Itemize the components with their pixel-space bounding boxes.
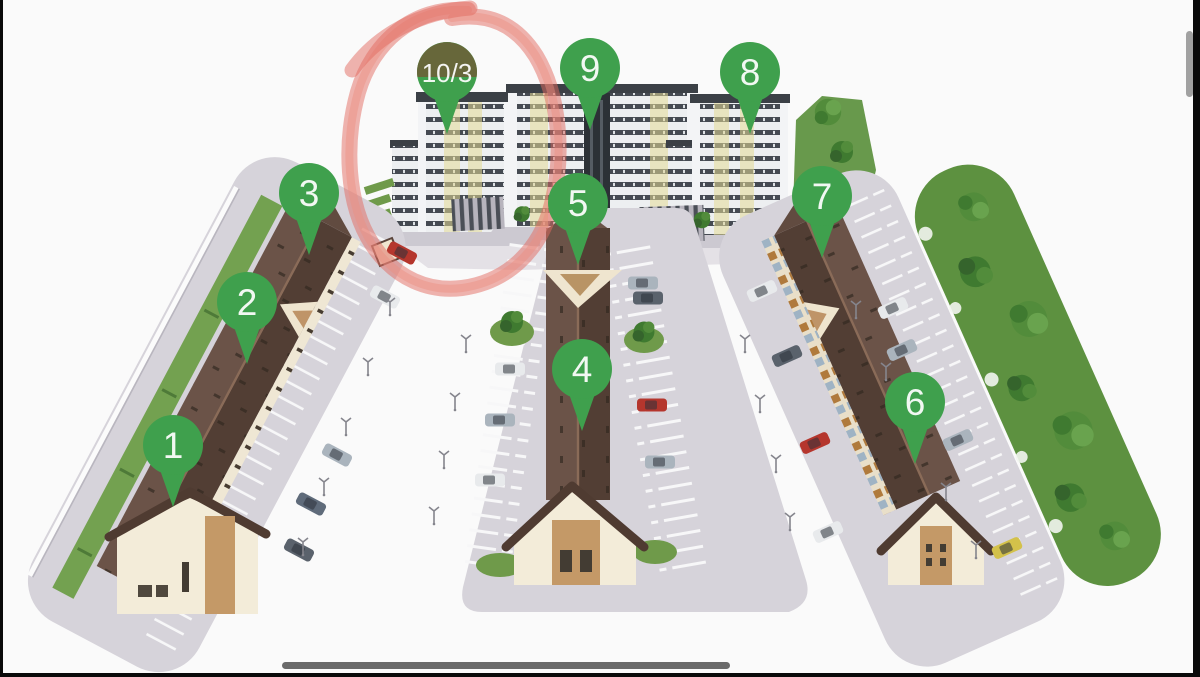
frame-right [1193,0,1200,677]
svg-text:9: 9 [580,48,601,89]
scrollbar-thumb[interactable] [1186,31,1193,97]
site-plan: 1 2 3 4 5 6 7 8 9 10/3 [0,0,1200,677]
car [628,277,658,290]
svg-text:1: 1 [163,425,184,466]
svg-text:5: 5 [568,183,589,224]
car [633,292,663,305]
frame-bottom [0,673,1200,677]
car [645,456,675,469]
svg-text:7: 7 [812,176,833,217]
svg-text:8: 8 [740,52,761,93]
car [495,363,525,376]
bottom-divider-bar [282,662,730,669]
svg-text:4: 4 [572,349,593,390]
svg-text:6: 6 [905,382,926,423]
svg-text:10/3: 10/3 [422,58,473,88]
tree [815,99,841,125]
car [475,474,505,487]
tower-parking-strip [451,197,505,232]
frame-left [0,0,3,677]
car [485,414,515,427]
svg-text:2: 2 [237,282,258,323]
site-plan-canvas: 1 2 3 4 5 6 7 8 9 10/3 [0,0,1200,677]
svg-text:3: 3 [299,173,320,214]
car [637,399,667,412]
